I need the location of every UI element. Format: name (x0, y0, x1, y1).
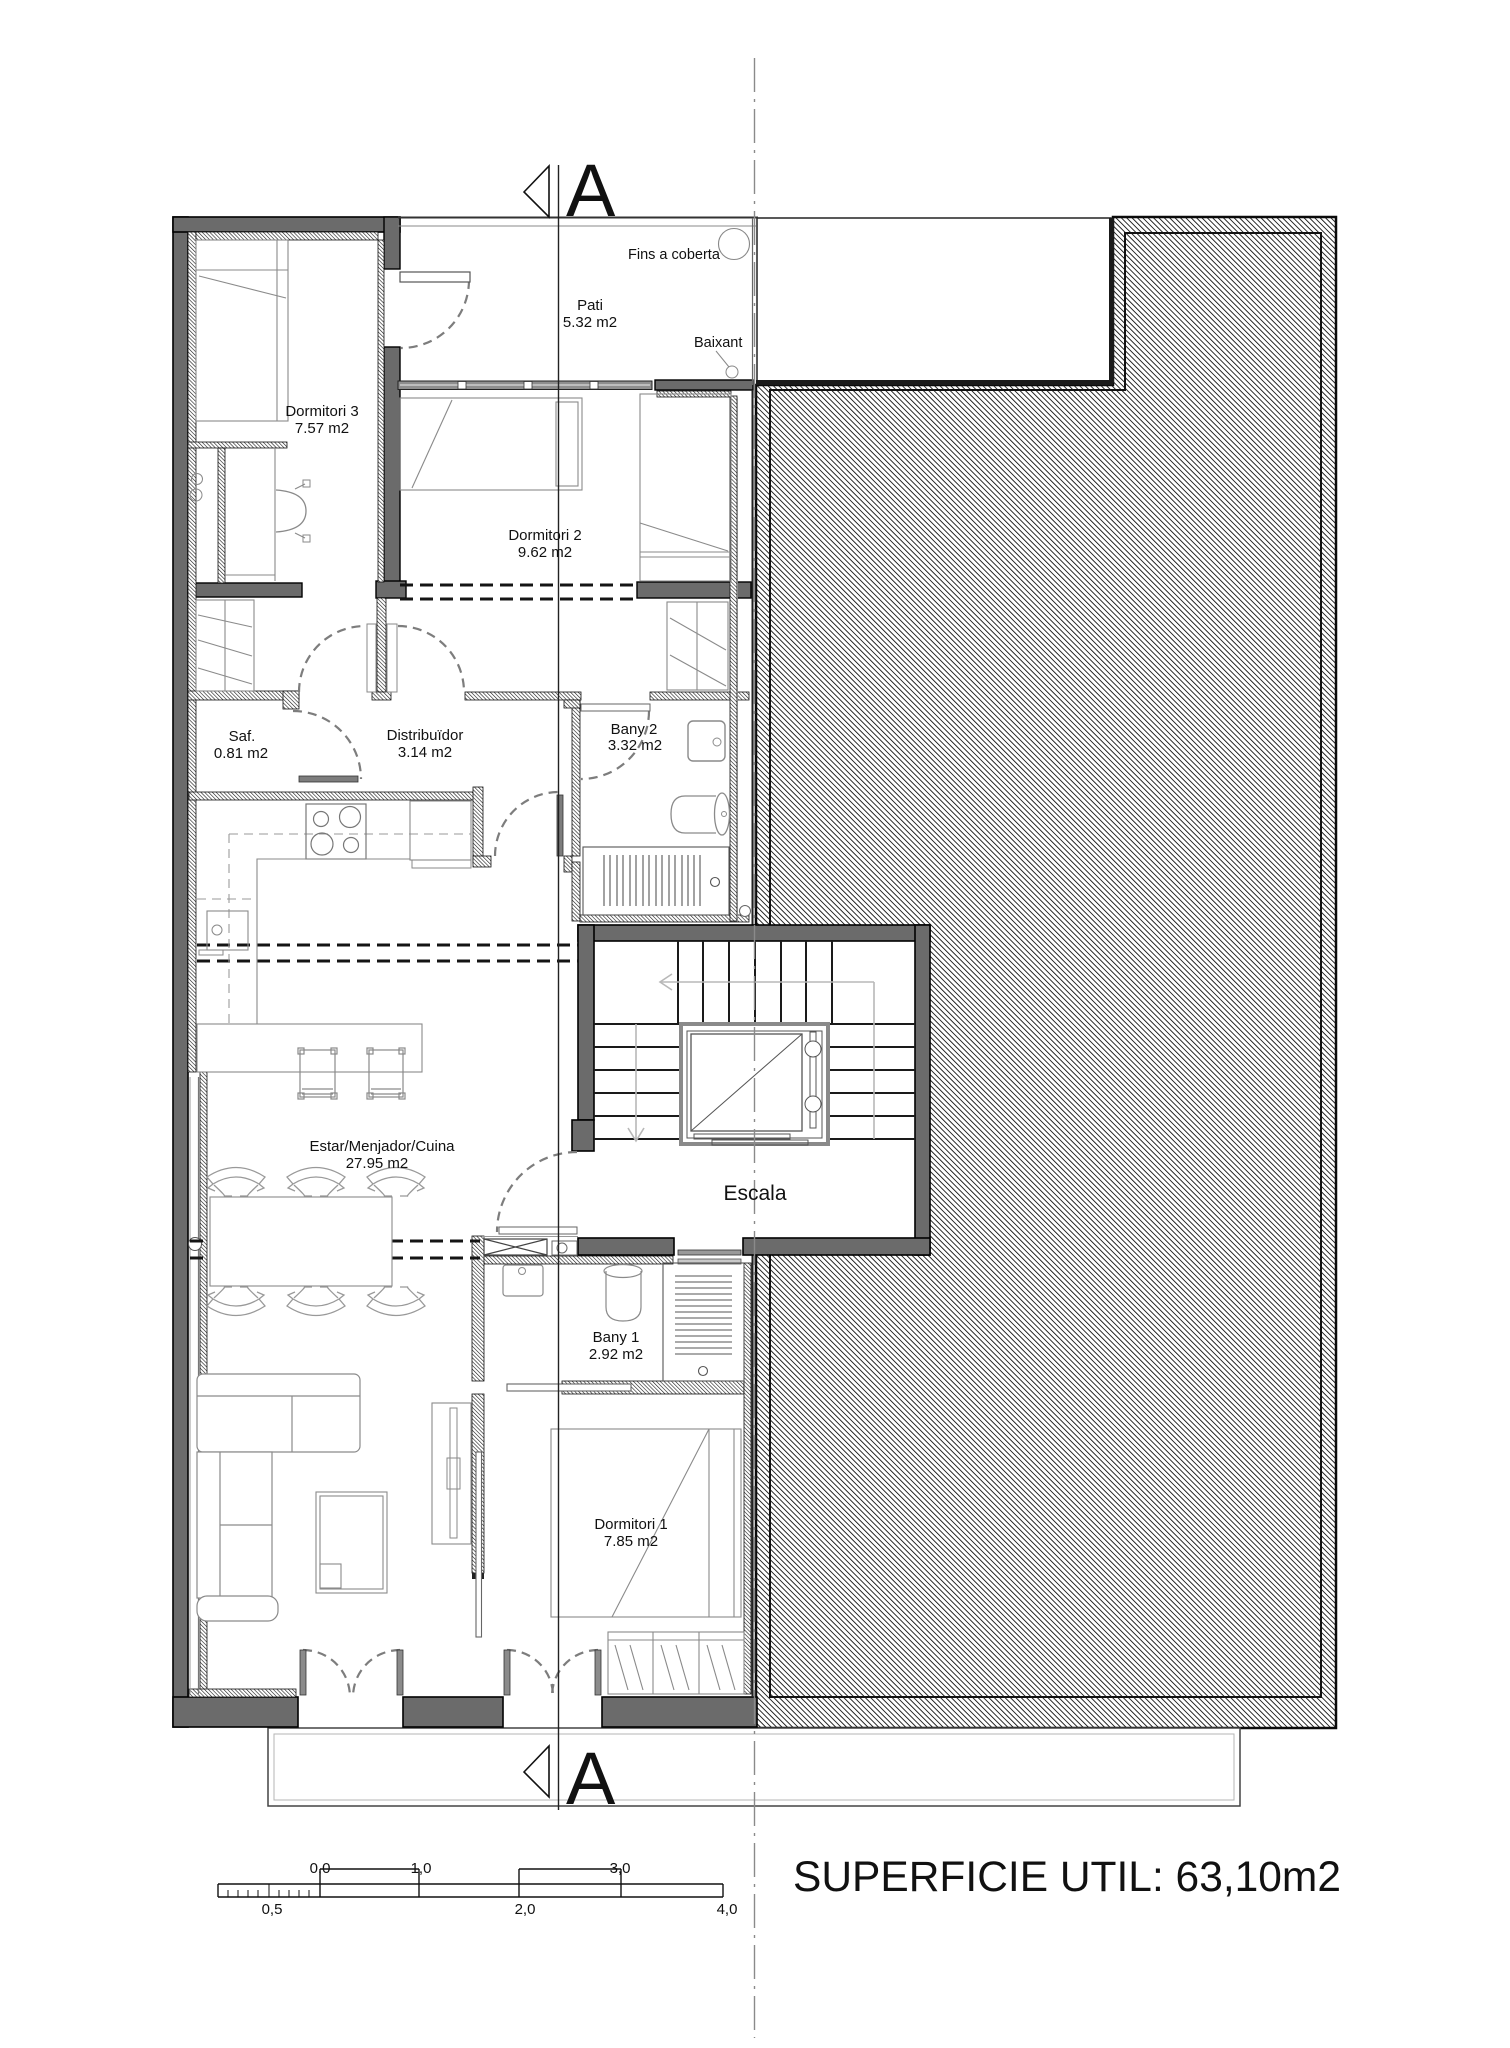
svg-text:3.32 m2: 3.32 m2 (608, 737, 662, 754)
svg-text:2,0: 2,0 (515, 1901, 536, 1918)
svg-text:5.32 m2: 5.32 m2 (563, 314, 617, 331)
svg-text:0,5: 0,5 (262, 1901, 283, 1918)
svg-text:SUPERFICIE UTIL: 63,10m2: SUPERFICIE UTIL: 63,10m2 (793, 1854, 1341, 1901)
svg-text:Dormitori 1: Dormitori 1 (594, 1516, 667, 1533)
svg-text:Bany 1: Bany 1 (593, 1329, 640, 1346)
svg-text:A: A (566, 1737, 616, 1820)
svg-text:9.62 m2: 9.62 m2 (518, 544, 572, 561)
svg-text:Pati: Pati (577, 297, 603, 314)
svg-text:7.57 m2: 7.57 m2 (295, 420, 349, 437)
svg-text:0.81 m2: 0.81 m2 (214, 745, 268, 762)
svg-text:4,0: 4,0 (717, 1901, 738, 1918)
svg-text:Estar/Menjador/Cuina: Estar/Menjador/Cuina (309, 1138, 455, 1155)
svg-text:0,0: 0,0 (310, 1860, 331, 1877)
svg-text:Dormitori 3: Dormitori 3 (285, 403, 358, 420)
svg-text:Escala: Escala (723, 1182, 786, 1205)
svg-text:Saf.: Saf. (229, 728, 256, 745)
svg-text:Dormitori 2: Dormitori 2 (508, 527, 581, 544)
svg-text:1,0: 1,0 (411, 1860, 432, 1877)
svg-text:Bany 2: Bany 2 (611, 721, 658, 738)
svg-text:Fins a coberta: Fins a coberta (628, 247, 721, 263)
svg-text:7.85 m2: 7.85 m2 (604, 1533, 658, 1550)
svg-text:Baixant: Baixant (694, 335, 742, 351)
svg-text:Distribuïdor: Distribuïdor (387, 727, 464, 744)
svg-text:A: A (566, 149, 616, 232)
svg-text:27.95 m2: 27.95 m2 (346, 1155, 409, 1172)
svg-text:3.14 m2: 3.14 m2 (398, 744, 452, 761)
svg-text:2.92 m2: 2.92 m2 (589, 1346, 643, 1363)
svg-text:3,0: 3,0 (610, 1860, 631, 1877)
